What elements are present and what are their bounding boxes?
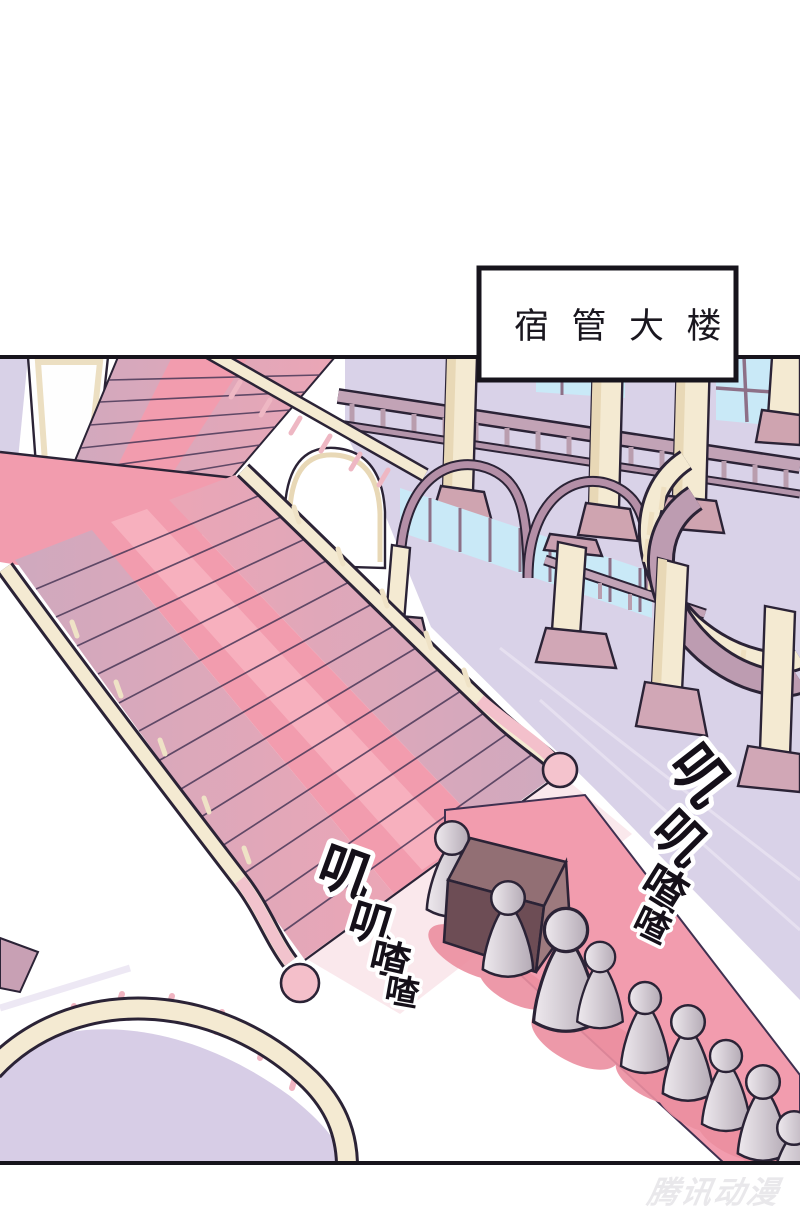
watermark-text: 腾讯动漫: [644, 1175, 785, 1211]
right-rail-finial-ball: [543, 753, 577, 787]
left-rail-finial-ball: [281, 964, 319, 1002]
comic-page: 宿管大楼 叽 叽 喳 喳 叽 叽 喳 喳 腾讯动漫: [0, 0, 800, 1227]
comic-illustration: 宿管大楼 叽 叽 喳 喳 叽 叽 喳 喳 腾讯动漫: [0, 0, 800, 1227]
building-sign: 宿管大楼: [479, 268, 744, 380]
sign-text: 宿管大楼: [514, 307, 744, 347]
